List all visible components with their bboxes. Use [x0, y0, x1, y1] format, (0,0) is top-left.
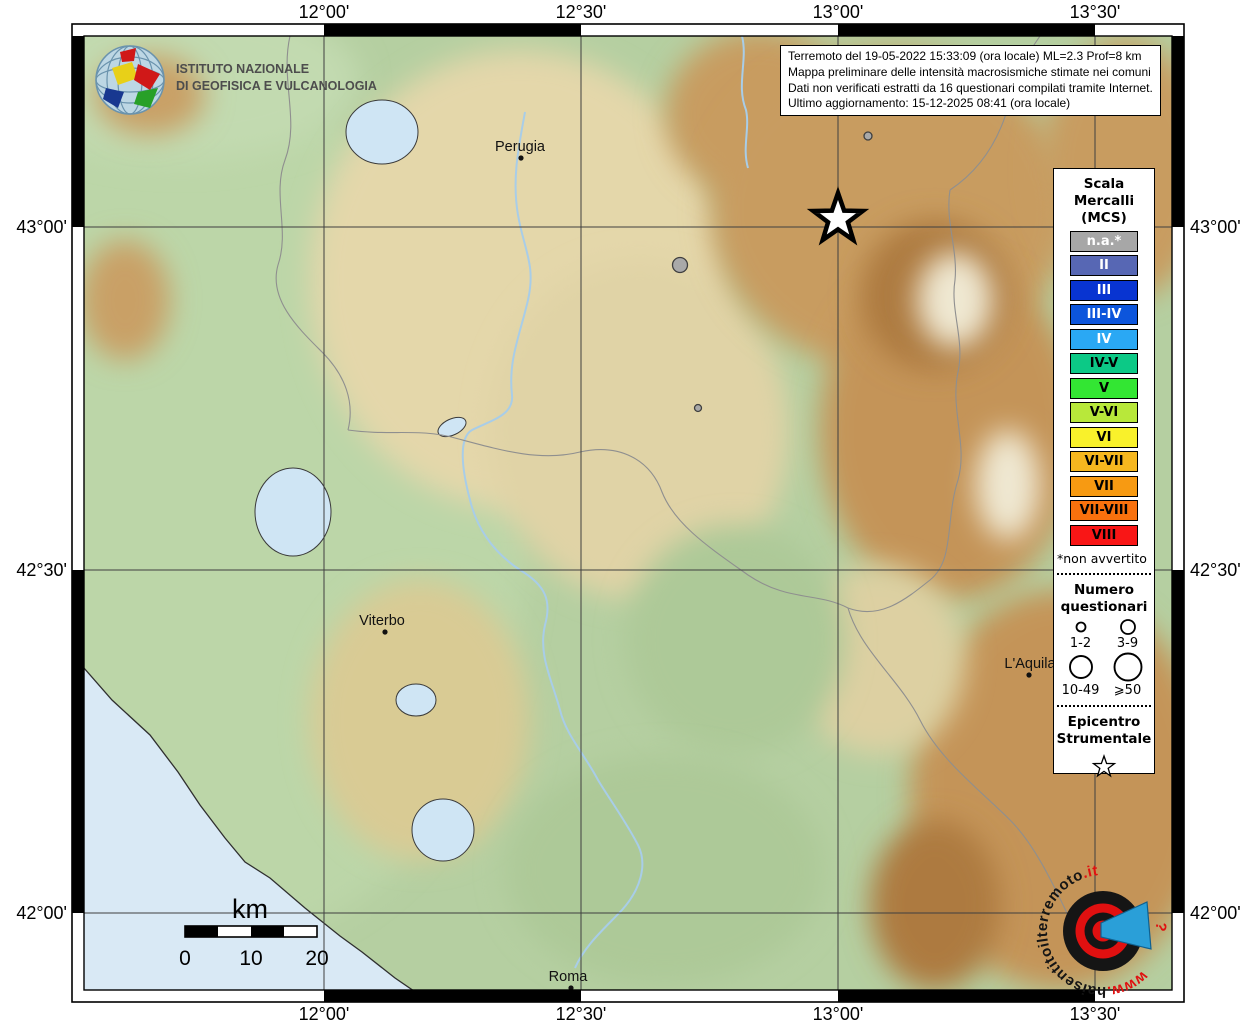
mcs-scale-item: V-VI — [1070, 402, 1138, 423]
legend-divider — [1057, 573, 1151, 575]
mcs-scale-item: n.a.* — [1070, 231, 1138, 252]
earthquake-title-box: Terremoto del 19-05-2022 15:33:09 (ora l… — [780, 45, 1161, 116]
city-label: L'Aquila — [1004, 656, 1056, 672]
mcs-scale-item: VIII — [1070, 525, 1138, 546]
questionari-size-10-49: 10-49 — [1057, 651, 1104, 698]
title-line-update: Ultimo aggiornamento: 15-12-2025 08:41 (… — [788, 96, 1153, 112]
legend-panel: Scala Mercalli (MCS) n.a.*IIIIIIII-IVIVI… — [1053, 168, 1155, 774]
axis-top-4: 13°30' — [1070, 2, 1121, 22]
questionari-size-1-2: 1-2 — [1057, 618, 1104, 651]
epicentro-title-line2: Strumentale — [1054, 731, 1154, 748]
questionari-size-50plus: ⩾50 — [1104, 651, 1151, 698]
mcs-scale-item: III-IV — [1070, 304, 1138, 325]
questionari-size-3-9: 3-9 — [1104, 618, 1151, 651]
epicentro-title-line1: Epicentro — [1054, 714, 1154, 731]
axis-top-2: 12°30' — [556, 2, 607, 22]
questionari-point — [673, 258, 688, 273]
lake-bolsena — [255, 468, 331, 556]
mcs-scale-item: II — [1070, 255, 1138, 276]
axis-left-3: 42°00' — [16, 903, 67, 923]
axis-left-2: 42°30' — [16, 560, 67, 580]
city-label: Roma — [549, 969, 589, 985]
title-line-map: Mappa preliminare delle intensità macros… — [788, 65, 1153, 81]
lake-vico — [396, 684, 436, 716]
mcs-scale-item: VI-VII — [1070, 451, 1138, 472]
questionari-point — [695, 405, 702, 412]
scale-tick-0: 0 — [179, 947, 191, 970]
city-marker — [1026, 672, 1031, 677]
map-terrain: PerugiaViterboL'AquilaRoma — [0, 0, 1210, 1002]
map-page: PerugiaViterboL'AquilaRoma — [0, 0, 1256, 1024]
size-circle-icon — [1112, 651, 1144, 683]
mcs-scale-item: VI — [1070, 427, 1138, 448]
mcs-scale-item: VII-VIII — [1070, 500, 1138, 521]
ingv-globe-icon — [96, 46, 164, 114]
mcs-scale-list: n.a.*IIIIIIII-IVIVIV-VVV-VIVIVI-VIIVIIVI… — [1054, 231, 1154, 546]
size-circle-icon — [1065, 651, 1097, 683]
axis-top-3: 13°00' — [813, 2, 864, 22]
legend-title-line3: (MCS) — [1054, 210, 1154, 227]
questionari-point — [864, 132, 872, 140]
mcs-scale-item: VII — [1070, 476, 1138, 497]
questionari-size-grid: 1-2 3-9 10-49 ⩾50 — [1054, 618, 1154, 698]
lake-trasimeno — [346, 100, 418, 164]
axis-right-3: 42°00' — [1190, 903, 1241, 923]
mcs-scale-item: III — [1070, 280, 1138, 301]
epicenter-star-icon — [1089, 752, 1119, 782]
legend-title-line2: Mercalli — [1054, 193, 1154, 210]
city-marker — [518, 155, 523, 160]
city-label: Perugia — [495, 139, 546, 155]
title-line-event: Terremoto del 19-05-2022 15:33:09 (ora l… — [788, 49, 1153, 65]
mcs-scale-item: IV-V — [1070, 353, 1138, 374]
legend-divider — [1057, 705, 1151, 707]
axis-bottom-3: 13°00' — [813, 1004, 864, 1024]
city-marker — [382, 629, 387, 634]
legend-footnote: *non avvertito — [1054, 551, 1154, 566]
axis-bottom-1: 12°00' — [299, 1004, 350, 1024]
questionari-title-line2: questionari — [1054, 599, 1154, 616]
axis-bottom-4: 13°30' — [1070, 1004, 1121, 1024]
scale-bar-unit: km — [232, 894, 268, 924]
scale-tick-10: 10 — [239, 947, 262, 970]
lake-bracciano — [412, 799, 474, 861]
city-label: Viterbo — [359, 613, 405, 629]
size-circle-icon — [1119, 618, 1137, 636]
axis-left-1: 43°00' — [16, 217, 67, 237]
mcs-scale-item: V — [1070, 378, 1138, 399]
size-circle-icon — [1072, 618, 1090, 636]
ingv-name-line2: DI GEOFISICA E VULCANOLOGIA — [176, 79, 377, 93]
axis-right-1: 43°00' — [1190, 217, 1241, 237]
axis-right-2: 42°30' — [1190, 560, 1241, 580]
axis-top-1: 12°00' — [299, 2, 350, 22]
title-line-data: Dati non verificati estratti da 16 quest… — [788, 81, 1153, 97]
mcs-scale-item: IV — [1070, 329, 1138, 350]
legend-title-line1: Scala — [1054, 176, 1154, 193]
axis-bottom-2: 12°30' — [556, 1004, 607, 1024]
questionari-title-line1: Numero — [1054, 582, 1154, 599]
scale-tick-20: 20 — [305, 947, 328, 970]
ingv-name-line1: ISTITUTO NAZIONALE — [176, 62, 309, 76]
